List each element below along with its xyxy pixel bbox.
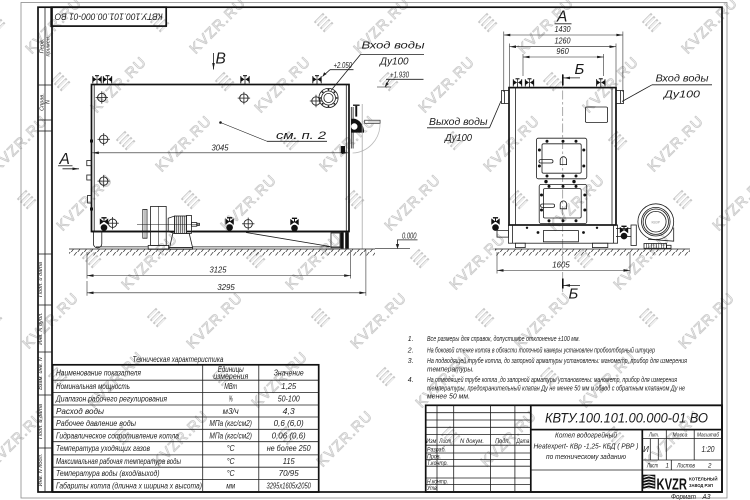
svg-text:0.000: 0.000: [402, 231, 417, 240]
svg-text:+1.930: +1.930: [390, 71, 409, 80]
svg-text:1:20: 1:20: [702, 445, 715, 454]
svg-text:На отводящей трубе котла ,до з: На отводящей трубе котла ,до запорной ар…: [427, 376, 677, 384]
svg-text:Габариты котла (длинна х ширин: Габариты котла (длинна х ширина х высота…: [56, 482, 202, 491]
svg-text:1,25: 1,25: [281, 382, 297, 391]
svg-text:3125: 3125: [210, 265, 227, 275]
svg-text:N докум.: N докум.: [460, 439, 484, 445]
svg-text:Инв. N дубл.: Инв. N дубл.: [38, 312, 44, 344]
svg-text:Изм: Изм: [426, 439, 436, 445]
svg-text:Температура уходящих газов: Температура уходящих газов: [56, 444, 150, 453]
svg-text:3045: 3045: [212, 143, 229, 153]
svg-text:И: И: [643, 445, 649, 454]
svg-text:1605: 1605: [552, 260, 570, 270]
svg-text:3295: 3295: [217, 282, 235, 292]
svg-text:мм: мм: [226, 482, 236, 491]
svg-text:Гидравлическое сопротивление к: Гидравлическое сопротивление котла: [56, 431, 180, 440]
svg-text:Техническая характеристика: Техническая характеристика: [133, 354, 224, 364]
svg-text:Диапазон рабочего регулировани: Диапазон рабочего регулирования: [55, 395, 168, 404]
svg-text:4,3: 4,3: [283, 407, 296, 416]
svg-text:менее 50 мм.: менее 50 мм.: [427, 394, 470, 401]
svg-text:Инв. N подл.: Инв. N подл.: [38, 454, 44, 487]
svg-text:0,6 (6,0): 0,6 (6,0): [274, 419, 304, 428]
svg-text:КВЗР: КВЗР: [651, 221, 660, 225]
svg-text:измерения: измерения: [213, 372, 249, 381]
svg-text:70/95: 70/95: [279, 469, 300, 478]
svg-text:Вход воды: Вход воды: [362, 40, 425, 52]
svg-text:1.: 1.: [408, 336, 414, 343]
svg-text:%: %: [229, 395, 233, 404]
svg-text:На подводящей трубе котла, д: На подводящей трубе котла, до запорной а…: [427, 357, 687, 365]
svg-text:0,06 (0,6): 0,06 (0,6): [272, 431, 306, 440]
svg-text:А3: А3: [702, 494, 711, 500]
svg-text:Значение: Значение: [274, 368, 305, 377]
svg-text:2.: 2.: [407, 348, 414, 355]
svg-text:Дата: Дата: [516, 439, 530, 445]
svg-text:2: 2: [707, 463, 712, 470]
svg-text:Выход воды: Выход воды: [429, 116, 488, 128]
svg-text:Рабочее давление воды: Рабочее давление воды: [56, 419, 136, 428]
svg-text:А: А: [556, 9, 567, 26]
svg-text:3.: 3.: [408, 358, 414, 365]
svg-text:КВТУ.100.101.00.000-01 ВО: КВТУ.100.101.00.000-01 ВО: [545, 411, 708, 426]
svg-text:Котел водогрейный: Котел водогрейный: [555, 431, 617, 440]
svg-text:Лист: Лист: [646, 463, 658, 470]
svg-text:Лист: Лист: [439, 439, 452, 445]
svg-text:Б: Б: [575, 61, 585, 78]
svg-text:Ду100: Ду100: [379, 56, 409, 68]
svg-text:960: 960: [556, 46, 569, 56]
svg-text:Температура воды (вход/выход): Температура воды (вход/выход): [56, 469, 160, 478]
svg-text:по техническому заданию: по техническому заданию: [546, 452, 626, 461]
svg-text:МПа (кгс/см2): МПа (кгс/см2): [209, 419, 252, 428]
svg-text:Расход воды: Расход воды: [56, 407, 104, 416]
svg-text:Масса: Масса: [673, 433, 689, 439]
svg-text:Ду100: Ду100: [444, 132, 472, 144]
svg-text:МВт: МВт: [224, 382, 237, 391]
svg-text:Вход воды: Вход воды: [656, 73, 709, 85]
svg-text:Пров.: Пров.: [427, 454, 441, 460]
svg-text:не более 250: не более 250: [267, 444, 312, 453]
svg-text:Максимальная рабочая температу: Максимальная рабочая температура воды: [56, 457, 181, 466]
svg-text:°С: °С: [227, 444, 235, 453]
svg-text:Подп. и дата: Подп. и дата: [38, 262, 44, 297]
svg-text:Ду100: Ду100: [663, 89, 700, 101]
svg-text:примен.: примен.: [46, 36, 52, 57]
svg-text:+2.050: +2.050: [334, 61, 353, 70]
svg-text:50-100: 50-100: [278, 395, 301, 404]
svg-text:ЗАВОД РЭП: ЗАВОД РЭП: [689, 483, 713, 489]
svg-text:м3/ч: м3/ч: [223, 407, 239, 416]
svg-text:4.: 4.: [408, 377, 414, 384]
svg-text:температуры.: температуры.: [427, 366, 474, 373]
svg-text:Т.контр.: Т.контр.: [427, 461, 448, 467]
svg-text:На боковой стенке котла в обла: На боковой стенке котла в области топочн…: [427, 347, 655, 355]
svg-text:1430: 1430: [555, 24, 571, 34]
svg-text:Утв.: Утв.: [426, 486, 438, 492]
svg-text:Взам. инв. N: Взам. инв. N: [38, 356, 44, 390]
svg-text:МПа (кгс/см2): МПа (кгс/см2): [209, 431, 252, 440]
svg-text:KVZR: KVZR: [657, 476, 688, 493]
svg-text:Б: Б: [569, 286, 579, 303]
svg-text:3295х1605х2050: 3295х1605х2050: [267, 482, 312, 491]
svg-text:1: 1: [666, 463, 669, 470]
svg-text:Масштаб: Масштаб: [697, 433, 720, 439]
svg-text:Номинальная мощность: Номинальная мощность: [56, 382, 130, 391]
svg-text:Подп. и дата: Подп. и дата: [38, 404, 44, 439]
svg-text:КВТУ.100.101.00.000-01 ВО: КВТУ.100.101.00.000-01 ВО: [55, 12, 163, 22]
svg-text:см. п. 2: см. п. 2: [276, 130, 326, 142]
svg-text:Все размеры для справок, допус: Все размеры для справок, допустимое откл…: [427, 335, 580, 343]
svg-text:°С: °С: [227, 469, 235, 478]
svg-text:1260: 1260: [555, 36, 571, 46]
svg-text:Формат: Формат: [671, 494, 696, 500]
svg-text:Наименование показателя: Наименование показателя: [56, 368, 142, 377]
svg-text:В: В: [216, 51, 226, 68]
svg-text:Разраб.: Разраб.: [427, 448, 446, 454]
svg-text:Н.контр.: Н.контр.: [427, 479, 448, 485]
svg-text:Heatexpert- КВр -1,25- КБД ( Р: Heatexpert- КВр -1,25- КБД ( РВР ): [534, 442, 639, 451]
svg-text:°С: °С: [227, 457, 235, 466]
svg-text:температуры, предохранительный: температуры, предохранительный клапан Ду…: [427, 384, 685, 392]
svg-text:Лит.: Лит.: [648, 433, 659, 439]
svg-text:Листов: Листов: [676, 463, 695, 470]
svg-text:Подп.: Подп.: [495, 439, 510, 445]
svg-text:115: 115: [283, 457, 296, 466]
